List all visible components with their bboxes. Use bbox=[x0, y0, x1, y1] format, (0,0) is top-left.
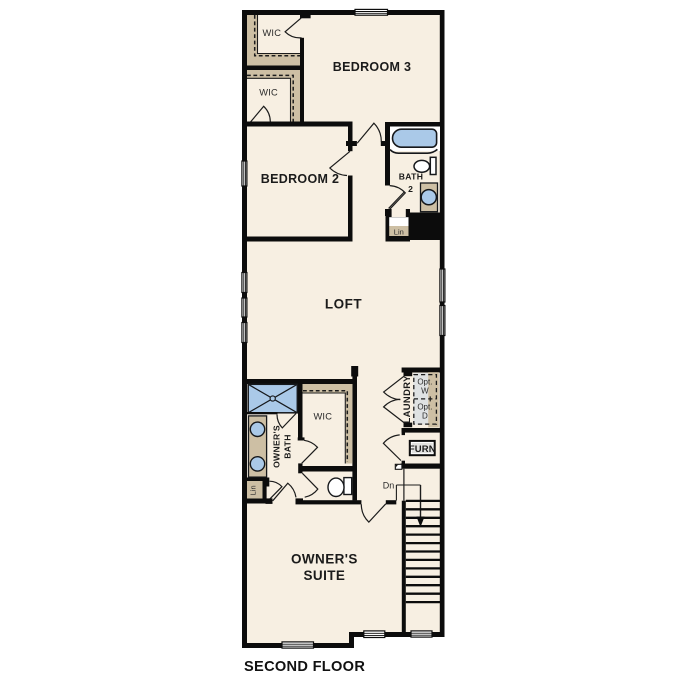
svg-text:FURN: FURN bbox=[409, 444, 436, 455]
svg-text:2: 2 bbox=[408, 184, 413, 194]
svg-text:WIC: WIC bbox=[259, 88, 278, 98]
svg-text:W: W bbox=[421, 387, 429, 396]
svg-text:Opt.: Opt. bbox=[417, 378, 432, 387]
svg-text:BATH: BATH bbox=[282, 434, 292, 458]
svg-text:SECOND FLOOR: SECOND FLOOR bbox=[244, 659, 365, 675]
svg-text:WIC: WIC bbox=[313, 411, 332, 421]
svg-text:Lin: Lin bbox=[394, 227, 404, 236]
svg-text:BEDROOM 3: BEDROOM 3 bbox=[333, 60, 411, 74]
svg-text:Lin: Lin bbox=[249, 485, 258, 495]
svg-text:LOFT: LOFT bbox=[325, 297, 362, 312]
svg-text:BEDROOM 2: BEDROOM 2 bbox=[261, 172, 339, 186]
svg-text:BATH: BATH bbox=[399, 172, 423, 182]
svg-text:OWNER'S: OWNER'S bbox=[291, 552, 358, 567]
svg-text:LAUNDRY: LAUNDRY bbox=[401, 375, 412, 424]
svg-text:D: D bbox=[422, 412, 428, 421]
svg-text:WIC: WIC bbox=[262, 28, 281, 38]
svg-text:SUITE: SUITE bbox=[304, 568, 346, 583]
svg-text:Dn: Dn bbox=[383, 481, 395, 491]
svg-text:OWNER'S: OWNER'S bbox=[271, 425, 281, 468]
svg-text:Opt.: Opt. bbox=[417, 403, 432, 412]
